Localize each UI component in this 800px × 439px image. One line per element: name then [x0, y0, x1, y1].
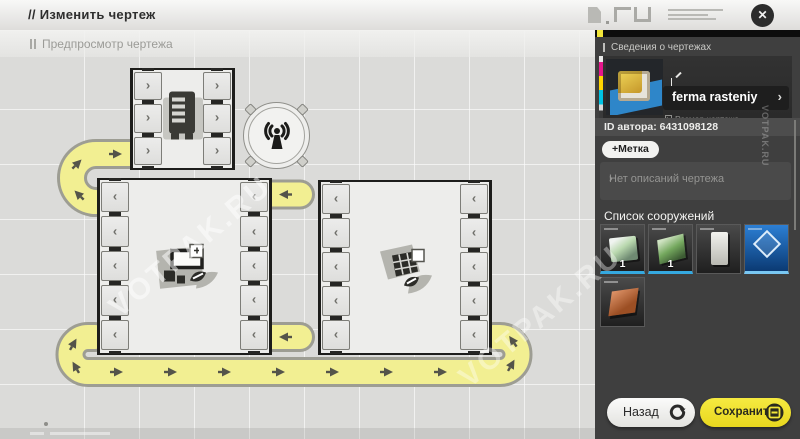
- io-slot[interactable]: ‹: [322, 184, 350, 214]
- structure-count: 1: [649, 258, 692, 270]
- planter-box-right[interactable]: ‹‹‹‹‹‹‹‹‹‹: [318, 180, 492, 355]
- structures-list-title: Список сооружений: [604, 209, 714, 223]
- blueprint-info-sidebar: Сведения о чертежах ferma rasteniy › Раз…: [595, 30, 800, 439]
- back-button[interactable]: Назад: [607, 398, 695, 427]
- author-id-bar: ID автора: 6431098128: [595, 118, 800, 136]
- color-stripes: [599, 56, 603, 118]
- io-slot[interactable]: ‹: [322, 286, 350, 316]
- signal-tower-structure[interactable]: [243, 102, 310, 169]
- separator-dot-icon: [606, 21, 609, 24]
- io-slot[interactable]: ‹: [101, 216, 129, 246]
- io-slot[interactable]: ‹: [460, 252, 488, 282]
- slot-chevron-icon: ‹: [102, 223, 128, 238]
- description-box[interactable]: Нет описаний чертежа ›: [600, 162, 791, 200]
- document-icon: [588, 7, 601, 23]
- chevron-right-icon: ›: [778, 89, 782, 104]
- conveyor-belts[interactable]: [0, 30, 595, 439]
- io-slot[interactable]: ‹: [240, 320, 268, 350]
- blueprint-name: ferma rasteniy: [672, 90, 757, 104]
- io-slot[interactable]: ‹: [460, 184, 488, 214]
- slot-chevron-icon: ‹: [102, 188, 128, 203]
- io-slot[interactable]: ‹: [240, 251, 268, 281]
- chevron-right-icon: ›: [609, 173, 783, 185]
- info-section-title: Сведения о чертежах: [611, 42, 711, 53]
- slot-chevron-icon: ‹: [102, 326, 128, 341]
- logo-glyph-icon: [634, 7, 651, 22]
- planter-box-left[interactable]: ‹‹‹‹‹‹‹‹‹‹: [97, 178, 272, 355]
- slot-chevron-icon: ‹: [323, 292, 349, 307]
- blueprint-summary-panel: ferma rasteniy › Размер чертежа 13×9: [599, 56, 792, 118]
- io-slot[interactable]: ‹: [322, 218, 350, 248]
- structure-image: [753, 230, 781, 258]
- blueprint-thumbnail[interactable]: [606, 59, 663, 115]
- thumb-label-mark: [748, 228, 762, 230]
- slot-chevron-icon: ‹: [323, 190, 349, 205]
- slot-chevron-icon: ‹: [102, 292, 128, 307]
- back-arrow-icon: [668, 403, 687, 422]
- io-slot[interactable]: ‹: [460, 320, 488, 350]
- io-slot[interactable]: ‹: [101, 320, 129, 350]
- slot-chevron-icon: ‹: [461, 326, 487, 341]
- save-button[interactable]: Сохранить: [700, 398, 791, 427]
- slot-chevron-icon: ‹: [241, 326, 267, 341]
- slot-chevron-icon: ›: [204, 77, 230, 92]
- slot-chevron-icon: ‹: [323, 258, 349, 273]
- io-slot[interactable]: ‹: [322, 320, 350, 350]
- fabricator-box[interactable]: ››››››: [130, 68, 235, 170]
- thumb-label-mark: [652, 228, 666, 230]
- slot-chevron-icon: ›: [204, 110, 230, 125]
- power-pylon-thumb[interactable]: [744, 224, 789, 274]
- blueprint-canvas[interactable]: Предпросмотр чертежа: [0, 30, 595, 439]
- structure-count: 1: [601, 258, 644, 270]
- copper-panel-thumb[interactable]: [600, 277, 645, 327]
- slot-chevron-icon: ‹: [461, 190, 487, 205]
- thumb-label-mark: [700, 228, 714, 230]
- silo-tower-thumb[interactable]: [696, 224, 741, 274]
- page-title: // Изменить чертеж: [28, 7, 156, 22]
- io-slot[interactable]: ‹: [322, 252, 350, 282]
- io-slot[interactable]: ‹: [101, 182, 129, 212]
- title-bar: // Изменить чертеж ✕: [0, 0, 800, 30]
- blueprint-editor-screen: // Изменить чертеж ✕ Предпросмотр чертеж…: [0, 0, 800, 439]
- structure-image: [711, 232, 728, 265]
- slot-chevron-icon: ‹: [241, 257, 267, 272]
- thumb-label-mark: [604, 228, 618, 230]
- slot-chevron-icon: ›: [204, 142, 230, 157]
- io-slot[interactable]: ‹: [101, 251, 129, 281]
- slot-chevron-icon: ‹: [241, 292, 267, 307]
- solar-machine-icon: [368, 229, 442, 306]
- growth-chamber-thumb[interactable]: 1: [600, 224, 645, 274]
- logo-glyph-icon: [614, 7, 631, 22]
- io-slot[interactable]: ‹: [101, 285, 129, 315]
- author-id: ID автора: 6431098128: [604, 121, 718, 133]
- fineprint-lines: [668, 9, 728, 23]
- fabricator-machine-icon: [158, 88, 208, 151]
- circuit-planter-thumb[interactable]: 1: [648, 224, 693, 274]
- seed-machine-icon: [148, 228, 222, 305]
- slot-chevron-icon: ‹: [241, 188, 267, 203]
- antenna-icon: [256, 116, 298, 156]
- section-marker-icon: [603, 43, 605, 52]
- io-slot[interactable]: ‹: [240, 182, 268, 212]
- blueprint-name-row[interactable]: ferma rasteniy ›: [663, 86, 789, 110]
- slot-chevron-icon: ‹: [323, 224, 349, 239]
- slot-chevron-icon: ‹: [102, 257, 128, 272]
- sidebar-top-strip: [595, 30, 800, 37]
- io-slot[interactable]: ‹: [240, 216, 268, 246]
- sidebar-scrollbar[interactable]: [794, 120, 796, 230]
- slot-chevron-icon: ‹: [461, 292, 487, 307]
- slot-chevron-icon: ‹: [461, 224, 487, 239]
- thumb-label-mark: [604, 281, 618, 283]
- slot-chevron-icon: ‹: [241, 223, 267, 238]
- io-slot[interactable]: ‹: [460, 286, 488, 316]
- add-tag-button[interactable]: +Метка: [602, 141, 659, 158]
- structure-image: [608, 288, 638, 316]
- io-slot[interactable]: ‹: [240, 285, 268, 315]
- save-disk-icon: [765, 403, 784, 422]
- slot-chevron-icon: ‹: [461, 258, 487, 273]
- back-button-label: Назад: [623, 405, 659, 419]
- slot-chevron-icon: ‹: [323, 326, 349, 341]
- close-icon[interactable]: ✕: [751, 4, 774, 27]
- structures-list: 11: [600, 224, 796, 327]
- io-slot[interactable]: ‹: [460, 218, 488, 248]
